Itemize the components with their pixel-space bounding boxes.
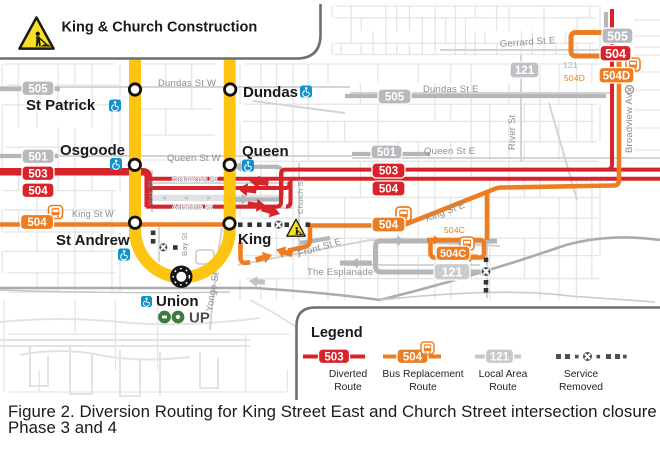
svg-text:Dundas: Dundas xyxy=(243,84,298,101)
svg-text:121: 121 xyxy=(515,65,535,77)
svg-text:504: 504 xyxy=(605,47,626,61)
svg-text:504: 504 xyxy=(27,217,47,229)
svg-text:121: 121 xyxy=(442,265,463,279)
svg-text:Diverted: Diverted xyxy=(329,369,368,380)
svg-text:Richmond St: Richmond St xyxy=(172,175,218,184)
svg-text:504D: 504D xyxy=(603,70,631,82)
svg-text:York St: York St xyxy=(146,180,155,206)
svg-text:River St: River St xyxy=(507,114,518,150)
svg-text:501: 501 xyxy=(28,151,48,163)
svg-text:Adelaide St: Adelaide St xyxy=(172,203,213,212)
svg-text:Route: Route xyxy=(489,382,517,393)
svg-text:504D: 504D xyxy=(564,73,585,83)
svg-text:Route: Route xyxy=(334,382,362,393)
svg-text:Queen St W: Queen St W xyxy=(167,153,221,164)
svg-text:King St W: King St W xyxy=(72,209,114,219)
svg-text:504: 504 xyxy=(403,351,423,363)
svg-text:Queen St E: Queen St E xyxy=(424,146,475,157)
svg-text:Route: Route xyxy=(409,382,437,393)
svg-text:Osgoode: Osgoode xyxy=(60,142,125,159)
svg-text:501: 501 xyxy=(377,147,397,159)
svg-text:Broadview Ave: Broadview Ave xyxy=(624,88,635,153)
svg-text:King & Church Construction: King & Church Construction xyxy=(62,20,258,36)
svg-text:Local Area: Local Area xyxy=(479,369,528,380)
svg-text:Queen: Queen xyxy=(242,143,289,160)
svg-text:Service: Service xyxy=(564,369,599,380)
svg-text:504: 504 xyxy=(379,184,399,196)
svg-text:121: 121 xyxy=(490,351,510,363)
svg-text:King: King xyxy=(238,231,271,248)
svg-text:505: 505 xyxy=(607,29,628,43)
svg-text:503: 503 xyxy=(28,168,47,180)
svg-text:Dundas St W: Dundas St W xyxy=(158,78,216,89)
svg-text:503: 503 xyxy=(324,351,343,363)
svg-text:505: 505 xyxy=(28,83,48,95)
svg-text:504C: 504C xyxy=(444,225,465,235)
svg-text:St Andrew: St Andrew xyxy=(56,232,130,249)
svg-text:505: 505 xyxy=(385,92,405,104)
svg-text:504: 504 xyxy=(28,185,48,197)
svg-text:Dundas St E: Dundas St E xyxy=(423,84,479,95)
svg-text:The Esplanade: The Esplanade xyxy=(307,267,374,278)
svg-text:121: 121 xyxy=(563,60,578,70)
svg-text:Union: Union xyxy=(156,293,199,310)
svg-text:Removed: Removed xyxy=(559,382,603,393)
svg-text:504C: 504C xyxy=(440,248,466,260)
svg-text:Bay St: Bay St xyxy=(180,232,189,256)
svg-text:Bus Replacement: Bus Replacement xyxy=(382,369,463,380)
svg-text:Legend: Legend xyxy=(311,325,363,341)
svg-text:Church St: Church St xyxy=(296,178,305,214)
svg-text:503: 503 xyxy=(379,166,398,178)
svg-text:Phase 3 and 4: Phase 3 and 4 xyxy=(8,418,117,437)
svg-text:St Patrick: St Patrick xyxy=(26,97,96,114)
svg-text:504: 504 xyxy=(379,220,399,232)
